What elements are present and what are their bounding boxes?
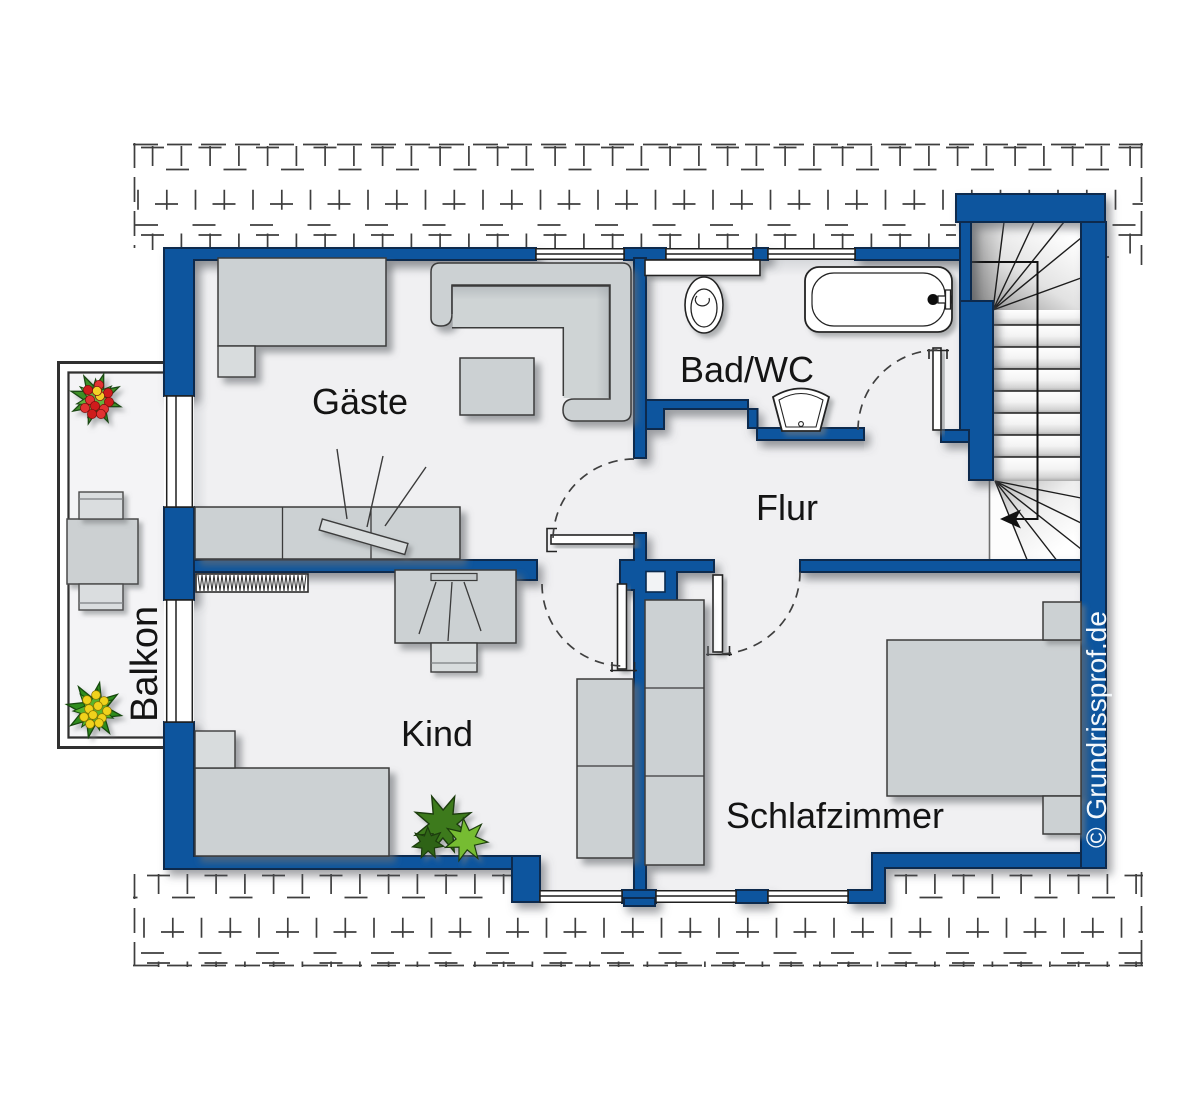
svg-text:Flur: Flur xyxy=(756,487,818,528)
svg-text:Gäste: Gäste xyxy=(312,381,408,422)
svg-text:Schlafzimmer: Schlafzimmer xyxy=(726,795,944,836)
svg-text:Bad/WC: Bad/WC xyxy=(680,349,814,390)
svg-text:Kind: Kind xyxy=(401,713,473,754)
svg-text:Balkon: Balkon xyxy=(124,606,166,722)
svg-text:© Grundrissprof.de: © Grundrissprof.de xyxy=(1081,611,1112,848)
